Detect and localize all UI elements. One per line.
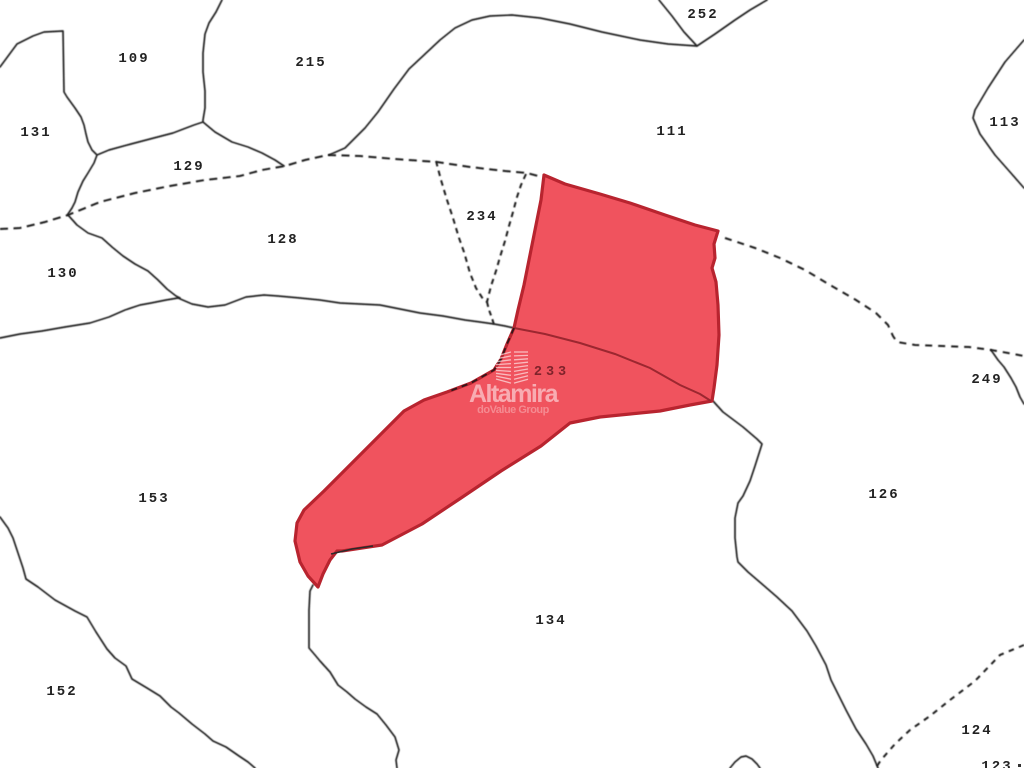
svg-text:131: 131 bbox=[20, 125, 51, 141]
svg-text:113: 113 bbox=[989, 115, 1020, 131]
svg-text:111: 111 bbox=[656, 124, 687, 140]
svg-text:233: 233 bbox=[534, 365, 570, 380]
svg-text:153: 153 bbox=[138, 491, 169, 507]
svg-text:129: 129 bbox=[173, 159, 204, 175]
svg-text:152: 152 bbox=[46, 684, 77, 700]
svg-text:109: 109 bbox=[118, 51, 149, 67]
svg-text:249: 249 bbox=[971, 372, 1002, 388]
svg-text:123: 123 bbox=[981, 759, 1012, 768]
svg-text:130: 130 bbox=[47, 266, 78, 282]
svg-text:126: 126 bbox=[868, 487, 899, 503]
svg-text:doValue Group: doValue Group bbox=[477, 404, 550, 416]
svg-text:234: 234 bbox=[466, 209, 497, 225]
svg-text:215: 215 bbox=[295, 55, 326, 71]
svg-text:134: 134 bbox=[535, 613, 566, 629]
svg-text:128: 128 bbox=[267, 232, 298, 248]
svg-text:124: 124 bbox=[961, 723, 992, 739]
svg-text:252: 252 bbox=[687, 7, 718, 23]
